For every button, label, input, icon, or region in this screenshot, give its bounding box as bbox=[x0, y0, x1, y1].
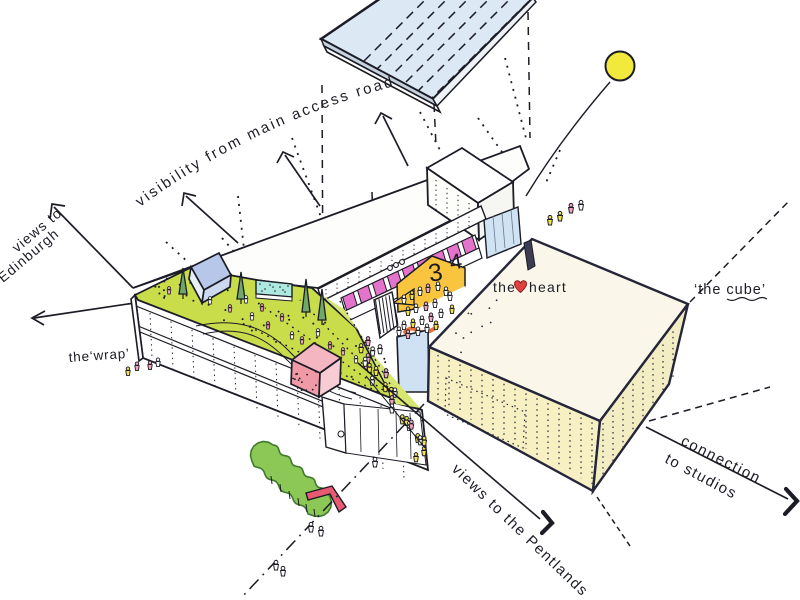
svg-text:heart: heart bbox=[529, 279, 567, 295]
svg-text:‘the cube’: ‘the cube’ bbox=[694, 282, 766, 298]
svg-text:the: the bbox=[493, 279, 516, 295]
